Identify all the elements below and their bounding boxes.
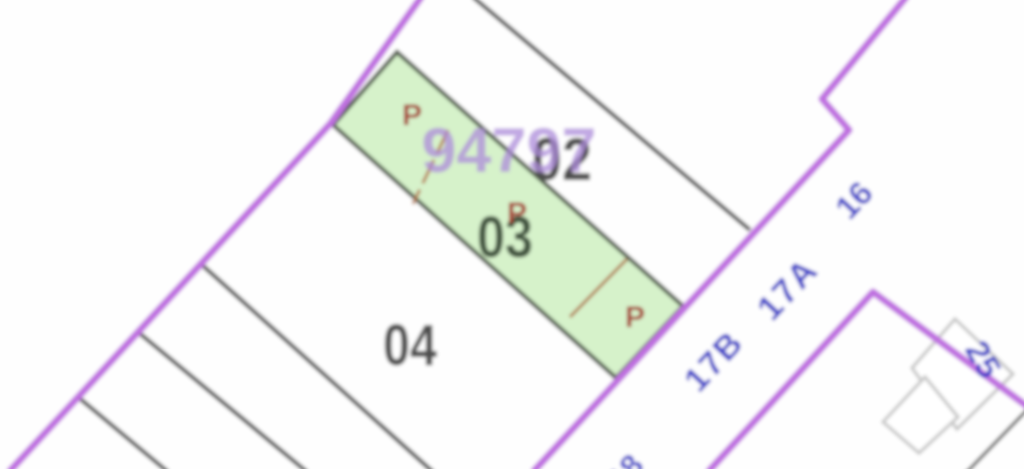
svg-text:P: P bbox=[507, 197, 527, 230]
svg-text:P: P bbox=[402, 99, 422, 132]
svg-text:P: P bbox=[625, 301, 645, 334]
svg-text:94797: 94797 bbox=[421, 116, 596, 186]
svg-text:04: 04 bbox=[383, 313, 437, 378]
